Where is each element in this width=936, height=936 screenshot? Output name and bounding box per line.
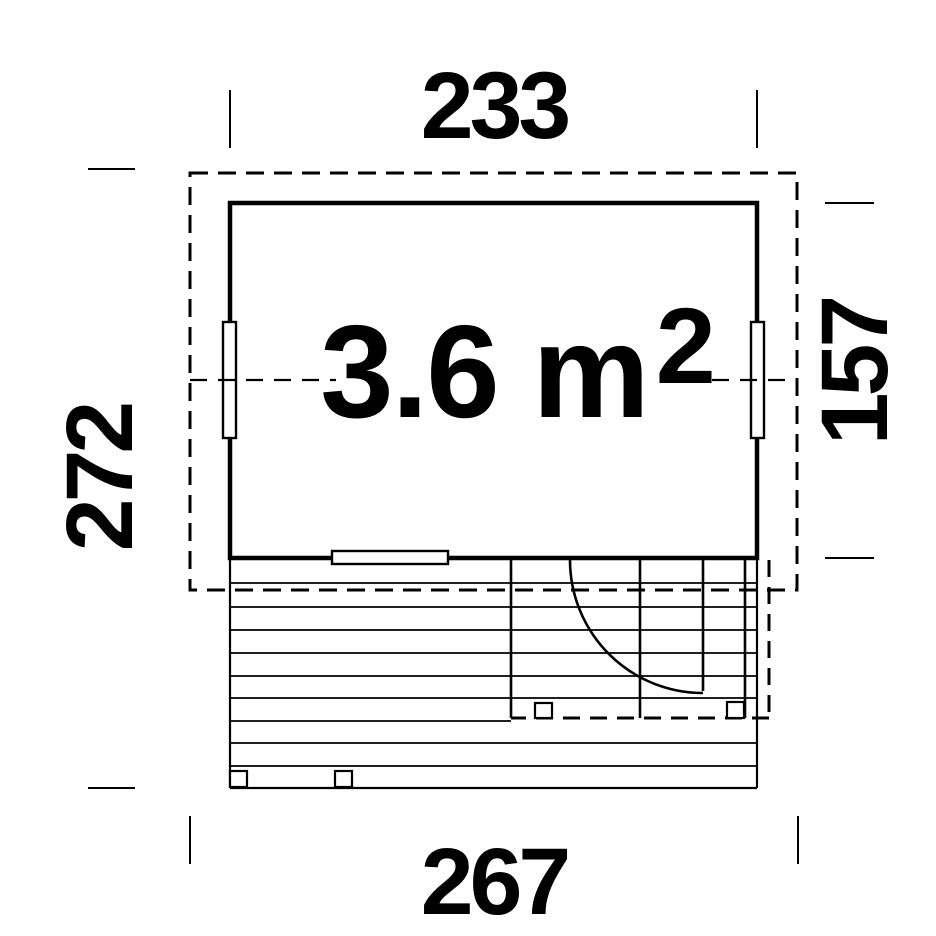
deck-planks	[231, 583, 756, 766]
deck-outline	[230, 558, 757, 788]
front-window	[332, 551, 448, 564]
dimension-width-top: 233	[394, 56, 594, 156]
foundation-posts	[230, 702, 744, 787]
area-exponent: 2	[656, 285, 716, 406]
area-value: 3.6 m	[320, 298, 648, 445]
dimension-height-left: 272	[50, 378, 150, 578]
door-swing-arc	[570, 560, 703, 693]
dimension-width-bottom: 267	[394, 832, 594, 932]
floor-plan-canvas: 233 267 272 157 3.6 m2	[0, 0, 936, 936]
area-label: 3.6 m2	[215, 297, 821, 447]
